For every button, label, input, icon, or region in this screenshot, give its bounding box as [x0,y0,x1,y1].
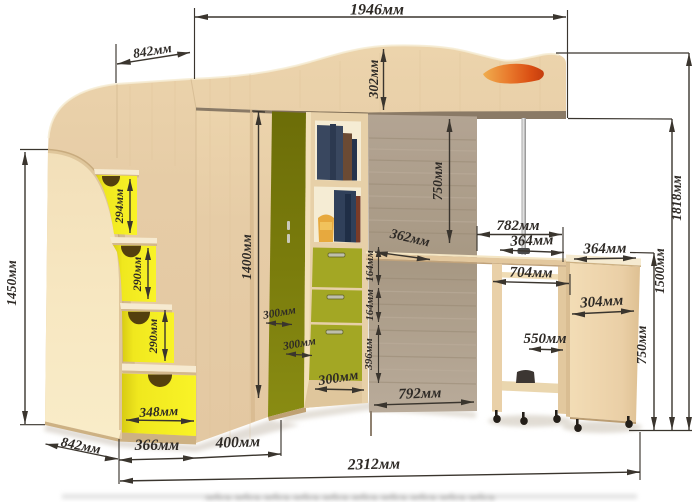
svg-text:364мм: 364мм [509,232,554,250]
svg-text:мебель мебель мебель мебель ме: мебель мебель мебель мебель мебель мебел… [204,492,496,502]
svg-text:792мм: 792мм [398,385,442,402]
svg-text:304мм: 304мм [579,293,624,312]
svg-text:1400мм: 1400мм [239,234,254,280]
svg-text:1450мм: 1450мм [4,260,19,306]
svg-text:550мм: 550мм [523,331,566,347]
svg-text:704мм: 704мм [509,265,552,282]
svg-text:294мм: 294мм [112,189,126,224]
svg-text:164мм: 164мм [364,250,376,282]
svg-text:290мм: 290мм [130,257,144,292]
svg-text:348мм: 348мм [138,403,178,420]
svg-text:290мм: 290мм [146,319,160,354]
svg-text:366мм: 366мм [134,437,180,454]
svg-text:2312мм: 2312мм [347,456,401,474]
svg-text:396мм: 396мм [363,338,375,371]
svg-text:750мм: 750мм [430,162,445,201]
svg-text:364мм: 364мм [582,241,626,258]
svg-text:1500мм: 1500мм [652,248,667,294]
svg-text:1946мм: 1946мм [350,2,404,19]
svg-text:164мм: 164мм [364,289,376,321]
svg-text:1818мм: 1818мм [669,175,684,221]
svg-text:750мм: 750мм [634,326,649,365]
svg-text:302мм: 302мм [366,60,381,100]
svg-text:400мм: 400мм [214,433,260,452]
svg-text:782мм: 782мм [496,218,539,234]
